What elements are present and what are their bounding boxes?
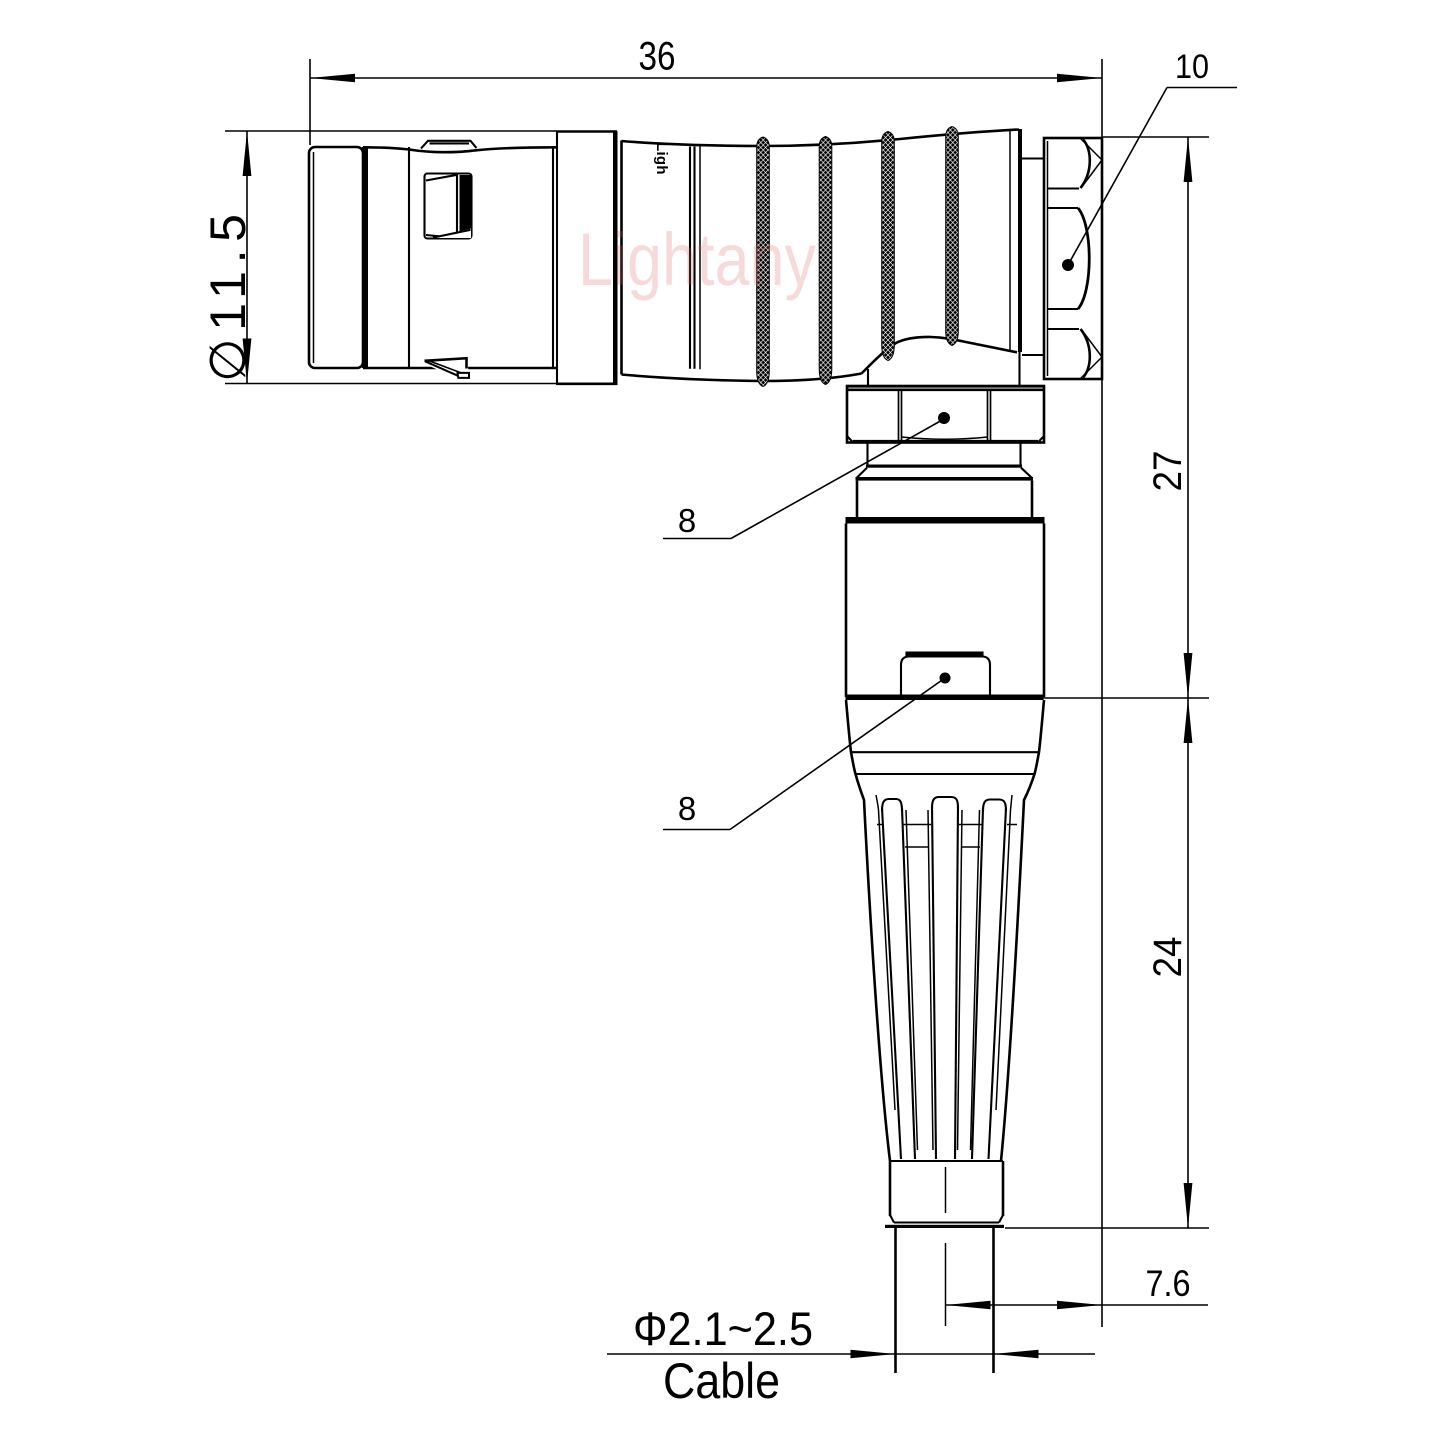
svg-text:10: 10 — [1175, 48, 1209, 86]
svg-text:27: 27 — [1146, 451, 1190, 492]
svg-text:Cable: Cable — [663, 1353, 780, 1409]
svg-text:36: 36 — [639, 35, 676, 79]
svg-text:Lightany: Lightany — [578, 218, 816, 301]
svg-text:8: 8 — [678, 790, 696, 827]
svg-text:7.6: 7.6 — [1146, 1263, 1191, 1304]
svg-text:Ligh: Ligh — [653, 142, 670, 175]
svg-text:24: 24 — [1146, 937, 1190, 978]
svg-text:Φ2.1~2.5: Φ2.1~2.5 — [633, 1302, 813, 1355]
svg-text:∅11.5: ∅11.5 — [200, 214, 256, 382]
svg-text:8: 8 — [678, 502, 696, 539]
